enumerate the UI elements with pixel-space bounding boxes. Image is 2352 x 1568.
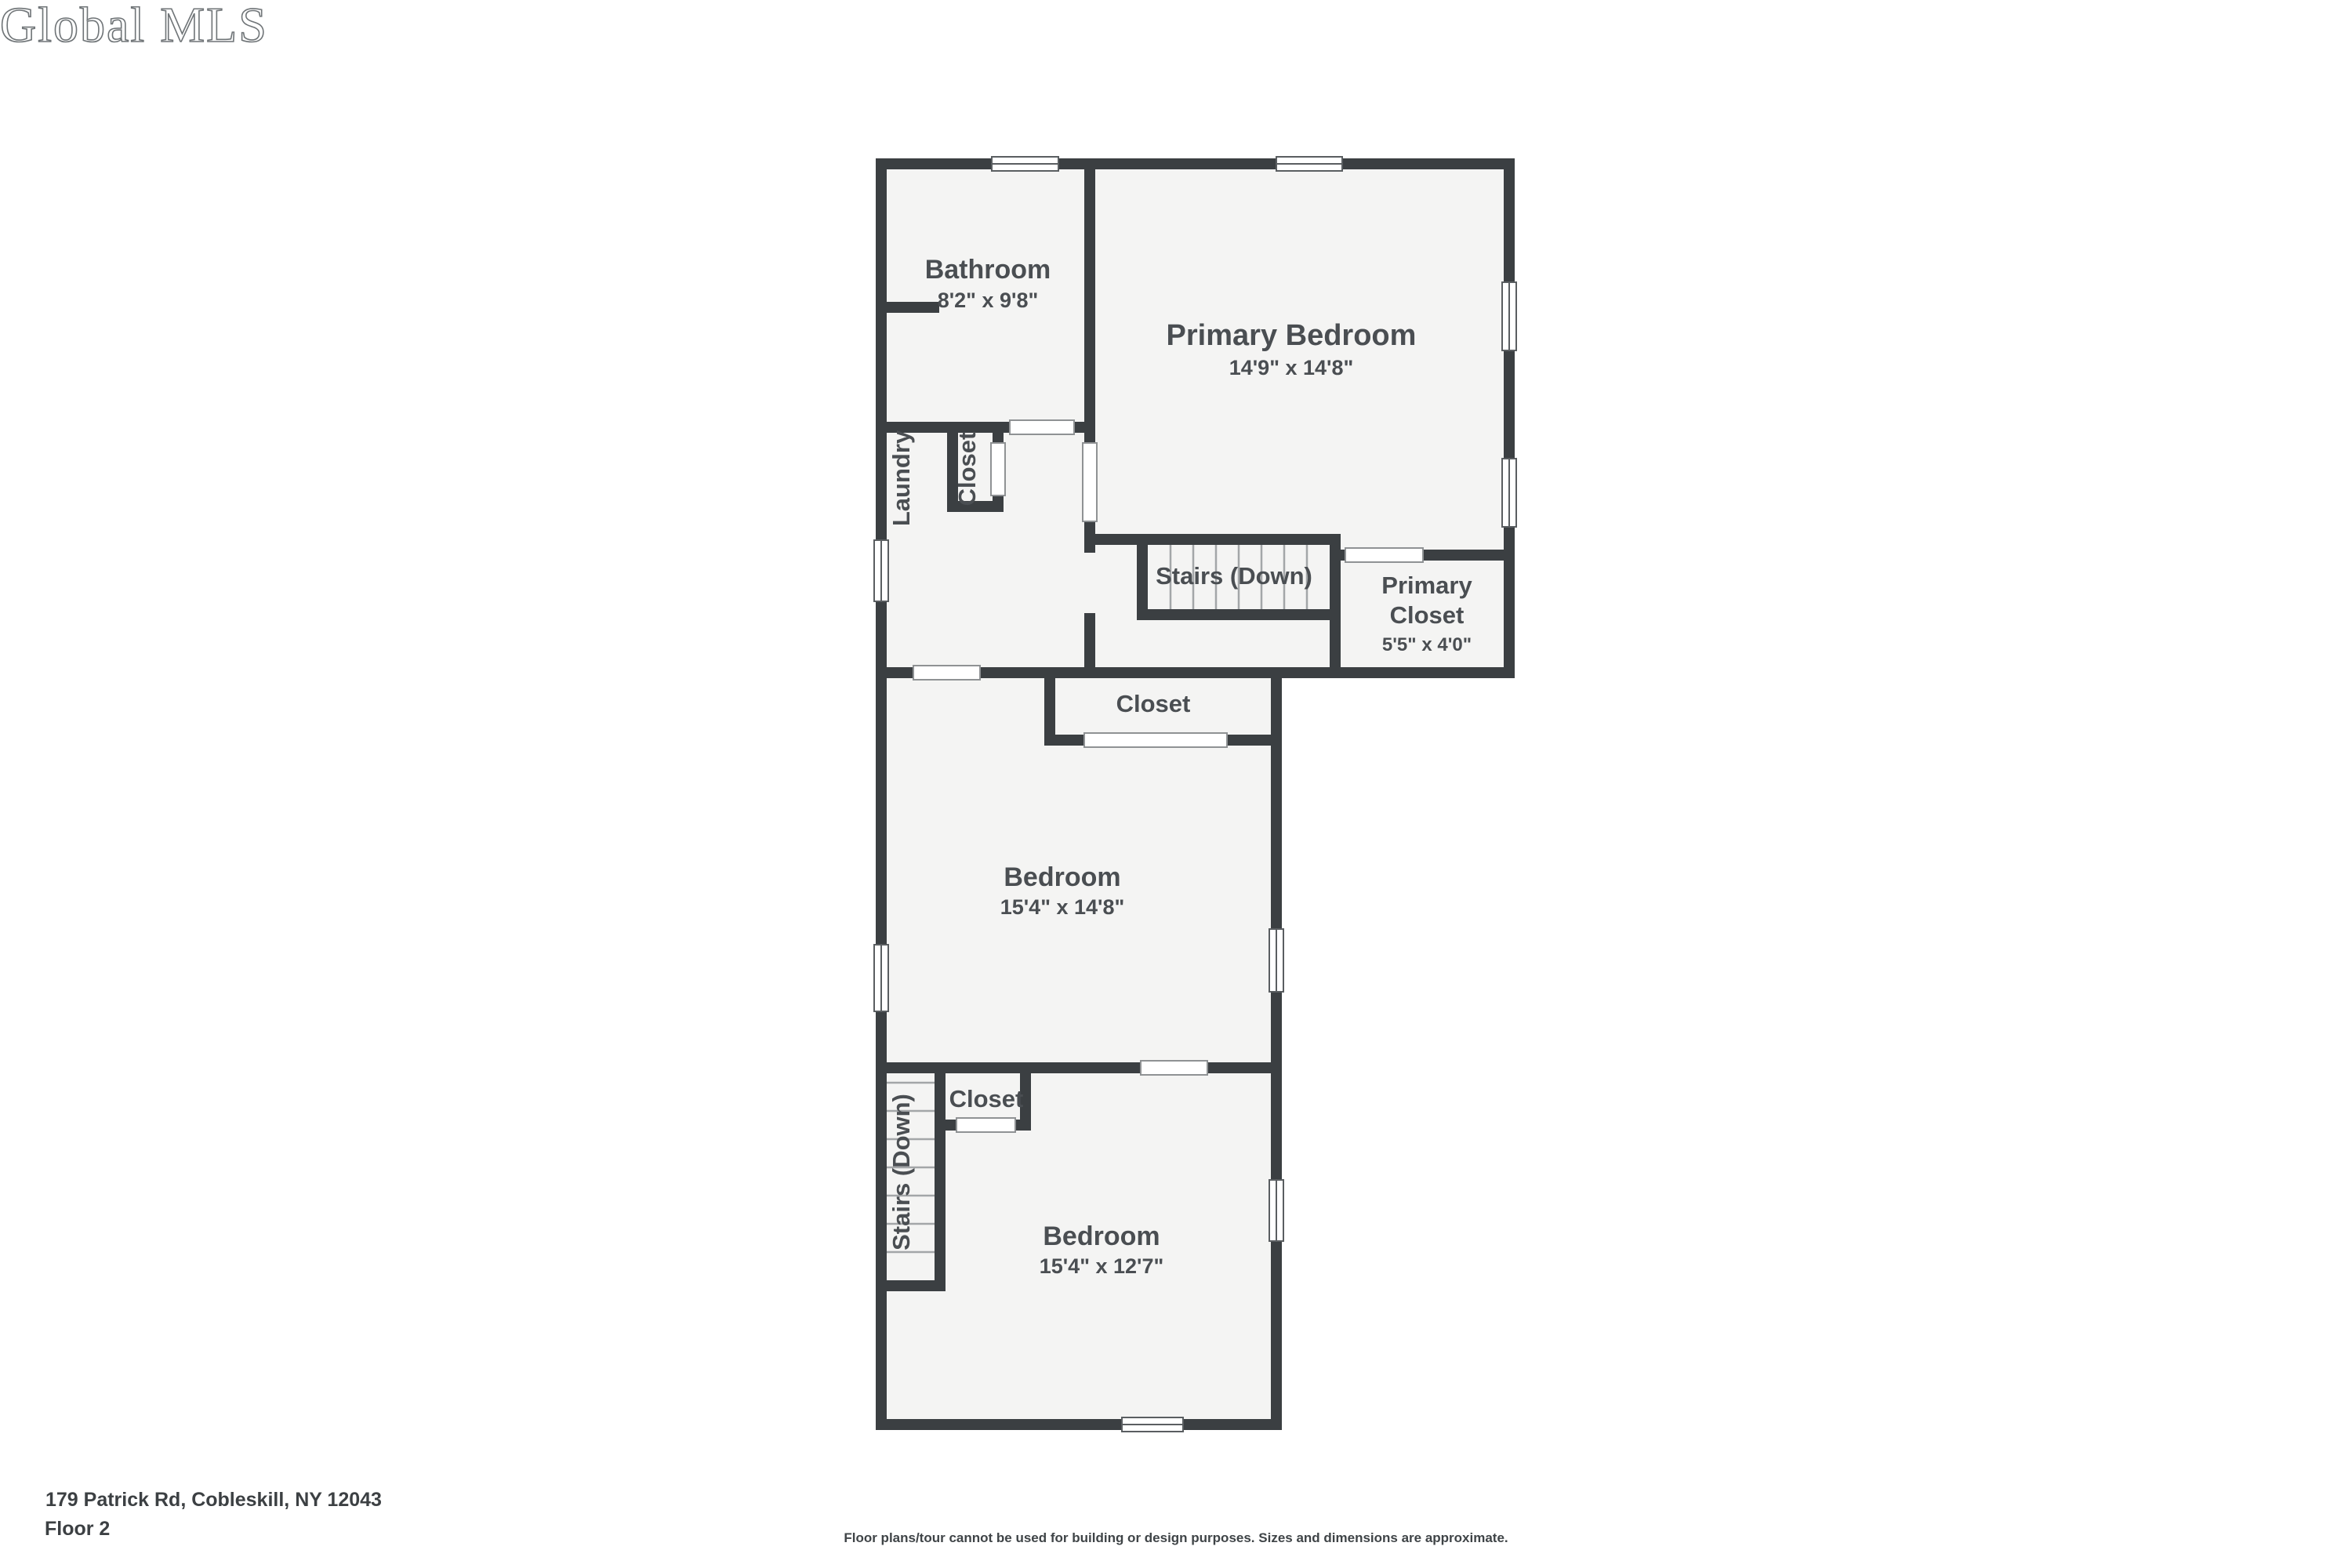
lower-closet-label: Closet [949,1085,1024,1112]
primary-closet-dims: 5'5" x 4'0" [1382,634,1472,655]
wall-right-upper [1504,158,1515,678]
middle-bedroom-label: Bedroom [1004,862,1120,892]
door-middle-bedroom [913,666,980,680]
primary-closet-label-line2: Closet [1390,601,1465,629]
lower-bedroom-dims: 15'4" x 12'7" [1040,1254,1164,1278]
wall-plan-bottom [876,1419,1282,1430]
primary-bedroom-dims: 14'9" x 14'8" [1229,356,1354,379]
wall-hall-divider-b [1084,521,1095,553]
wall-stairs-lower-right [935,1073,946,1291]
door-laundry-closet [991,443,1005,495]
wall-primary-closet-left [1330,534,1341,678]
wall-hall-divider-a [1084,433,1095,443]
bathroom-label: Bathroom [925,255,1051,285]
wall-laundry-closet-right-a [993,433,1004,443]
primary-closet-label-line1: Primary [1381,572,1472,599]
lower-bedroom-label: Bedroom [1043,1221,1160,1251]
door-lower-bedroom [1141,1061,1207,1075]
wall-stairs-upper-bottom [1137,609,1341,620]
upper-section-floor [876,158,1515,678]
wall-hall-closet-left [1044,678,1055,746]
stairs-upper-label: Stairs (Down) [1156,562,1312,590]
wall-left [876,158,887,1430]
door-primary-closet [1345,548,1423,562]
laundry-closet-label: Closet [953,432,981,506]
floor-plan: Bathroom 8'2" x 9'8" Primary Bedroom 14'… [0,0,2352,1568]
property-address: 179 Patrick Rd, Cobleskill, NY 12043 [45,1489,382,1512]
wall-stairs-upper-left [1137,534,1148,620]
wall-middle-section-bottom [876,1062,1282,1073]
wall-top [876,158,1515,169]
wall-laundry-closet-right-b [993,495,1004,512]
wall-stairs-upper-top [1084,534,1341,545]
hall-closet-label: Closet [1116,690,1191,717]
wall-right-lower [1271,678,1282,1430]
door-lower-closet [956,1118,1015,1132]
door-hall-closet [1084,733,1227,747]
door-primary-bedroom [1083,443,1097,521]
stairs-lower-label: Stairs (Down) [887,1094,915,1250]
disclaimer-text: Floor plans/tour cannot be used for buil… [0,1530,2352,1546]
primary-bedroom-label: Primary Bedroom [1167,319,1417,352]
laundry-label: Laundry [887,430,915,526]
door-bathroom [1010,420,1074,434]
middle-bedroom-dims: 15'4" x 14'8" [1000,895,1125,919]
bathroom-dims: 8'2" x 9'8" [938,289,1039,312]
wall-hall-divider-c [1084,613,1095,678]
wall-bathroom-right [1084,158,1095,433]
